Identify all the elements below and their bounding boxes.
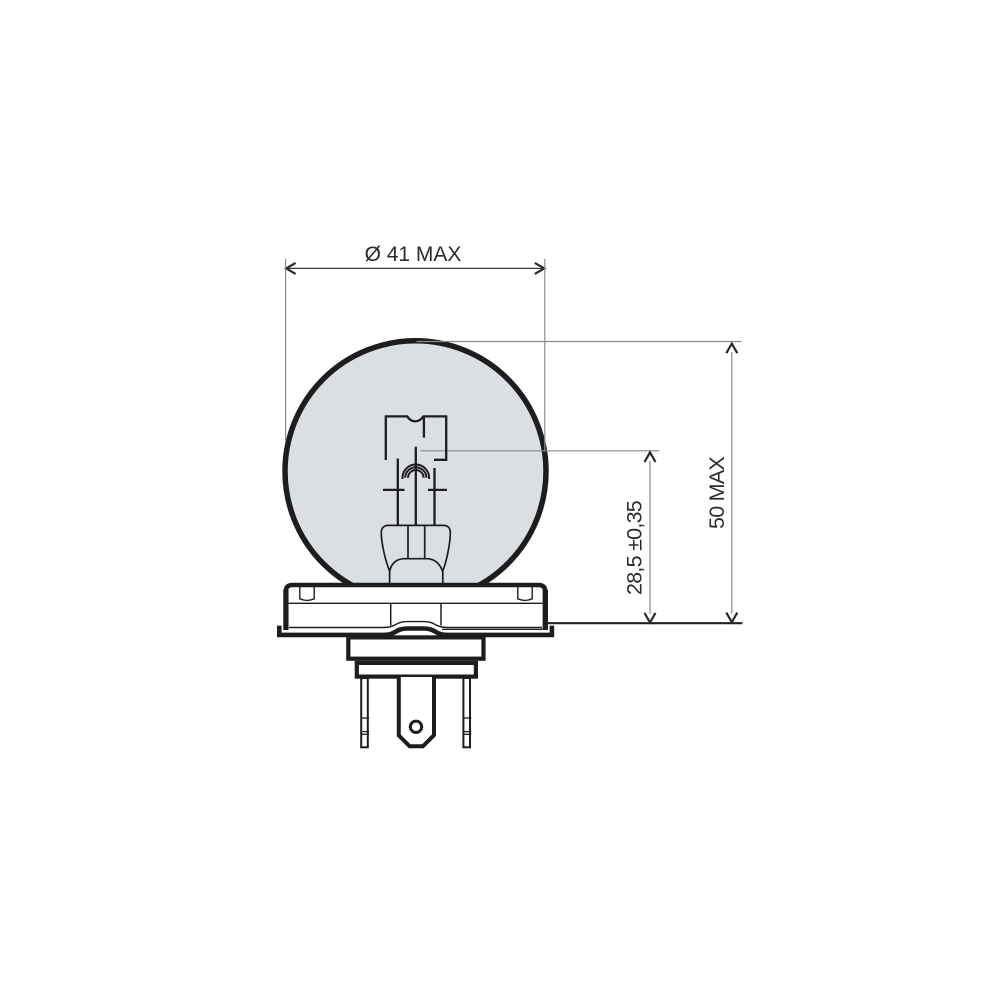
- svg-text:Ø 41 MAX: Ø 41 MAX: [365, 243, 462, 266]
- svg-text:50 MAX: 50 MAX: [705, 457, 729, 529]
- svg-text:28,5 ±0,35: 28,5 ±0,35: [623, 500, 647, 595]
